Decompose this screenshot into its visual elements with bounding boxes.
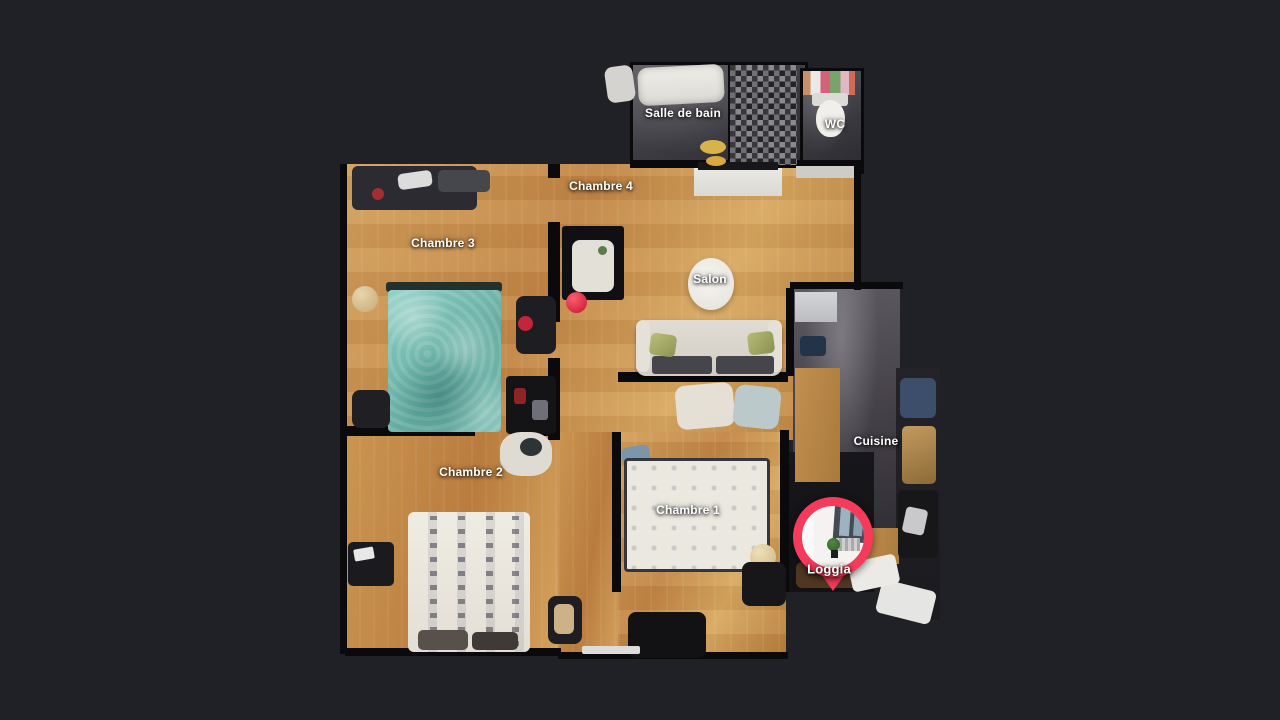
shower-mosaic-floor <box>728 65 797 165</box>
kitchen-counter <box>795 368 840 482</box>
wall-segment <box>612 432 621 592</box>
beige-bag <box>554 604 574 634</box>
tv-console <box>694 168 782 196</box>
floor-plan[interactable]: Salle de bain WC Chambre 4 Chambre 3 Sal… <box>0 0 1280 720</box>
loggia-location-pin[interactable] <box>793 497 873 593</box>
wc-shelf <box>803 71 855 95</box>
hall-threshold <box>796 166 854 178</box>
red-jacket <box>518 316 533 331</box>
laundry-dark-item <box>520 438 542 456</box>
wall-segment <box>790 282 903 289</box>
fridge <box>795 292 837 322</box>
loggia-plant-pot <box>831 550 838 558</box>
clothes-red-item <box>372 188 384 200</box>
wall-segment <box>548 164 560 178</box>
pin-ring-icon <box>793 497 873 577</box>
plant-small <box>598 246 607 255</box>
wall-segment <box>786 288 794 376</box>
red-ball <box>566 292 587 313</box>
floor-clutter <box>742 562 786 606</box>
baseboard <box>582 646 640 654</box>
floor-clutter <box>352 390 390 428</box>
toilet <box>816 100 845 137</box>
bed-pattern <box>512 516 519 646</box>
wardrobe-grey-item <box>532 400 548 420</box>
sofa-seat-shadow <box>716 356 774 374</box>
floor-plan-viewer: Salle de bain WC Chambre 4 Chambre 3 Sal… <box>0 0 1280 720</box>
curtain-drape <box>674 382 736 431</box>
coffee-table <box>688 258 734 310</box>
sofa-pillow-left <box>649 332 678 357</box>
bedside-stool <box>352 286 378 312</box>
counter-clutter-wood <box>902 426 936 484</box>
clothes-grey-item <box>438 170 490 192</box>
mattress-chambre-1 <box>624 458 770 572</box>
sofa-pillow-right <box>747 330 775 355</box>
bed-pillow-dark <box>418 630 468 650</box>
bed-pattern <box>458 516 465 646</box>
curtain-drape <box>732 384 782 431</box>
towel-pile <box>604 64 637 104</box>
bath-mat <box>700 140 726 154</box>
kitchen-dark-item <box>800 336 826 356</box>
bed-chambre-4 <box>572 240 614 292</box>
bathtub <box>637 64 725 106</box>
counter-clutter-blue <box>900 378 936 418</box>
bed-pattern <box>430 516 437 646</box>
wall-segment <box>854 164 861 290</box>
wardrobe <box>506 376 556 434</box>
bed-pattern <box>486 516 493 646</box>
wardrobe-red-item <box>514 388 526 404</box>
sofa-armrest-left <box>636 320 650 372</box>
sofa-seat-shadow <box>652 356 712 374</box>
loggia-wall-preview <box>802 506 814 568</box>
bed-pillow-dark <box>472 632 518 650</box>
wall-segment <box>340 164 347 654</box>
bed-chambre-3 <box>388 290 501 432</box>
fruit-bowl <box>706 156 726 166</box>
